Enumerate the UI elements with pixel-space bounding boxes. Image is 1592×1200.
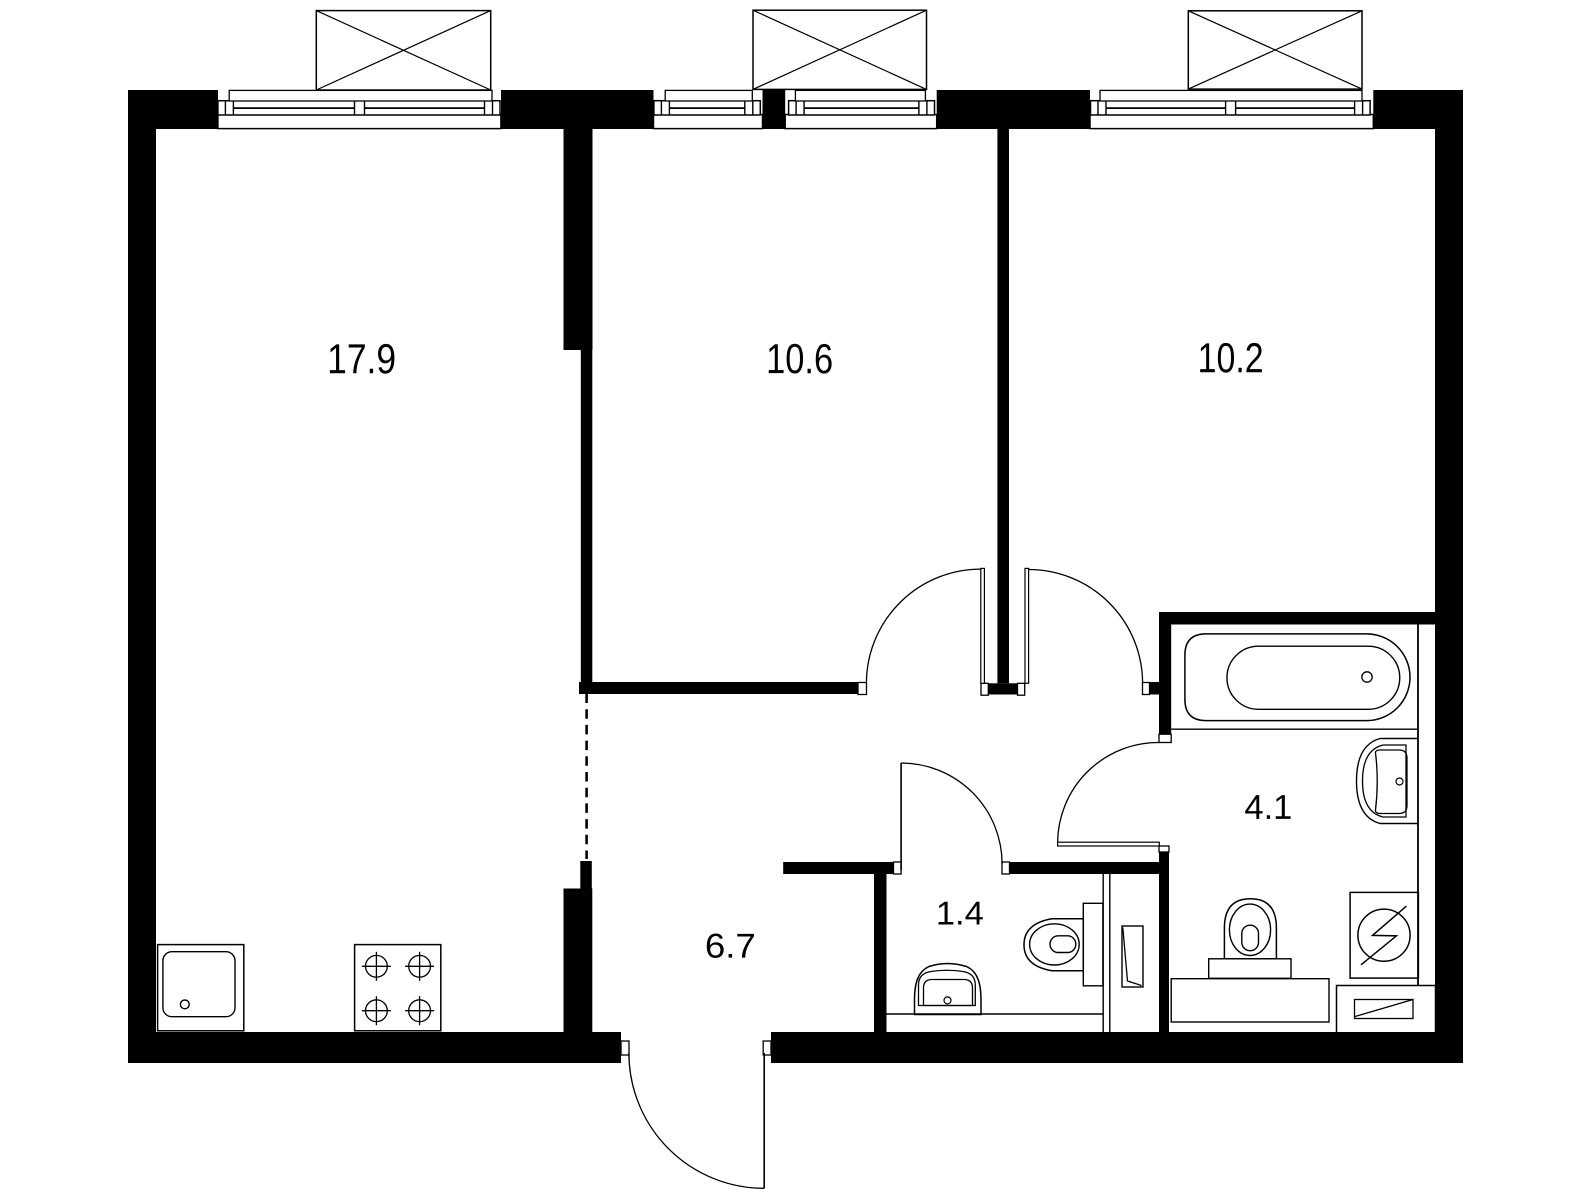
- svg-text:4.1: 4.1: [1244, 789, 1292, 827]
- svg-text:10.2: 10.2: [1198, 334, 1264, 381]
- svg-text:10.6: 10.6: [766, 335, 833, 382]
- svg-text:17.9: 17.9: [327, 335, 396, 382]
- svg-text:6.7: 6.7: [705, 928, 756, 966]
- svg-text:1.4: 1.4: [936, 894, 984, 931]
